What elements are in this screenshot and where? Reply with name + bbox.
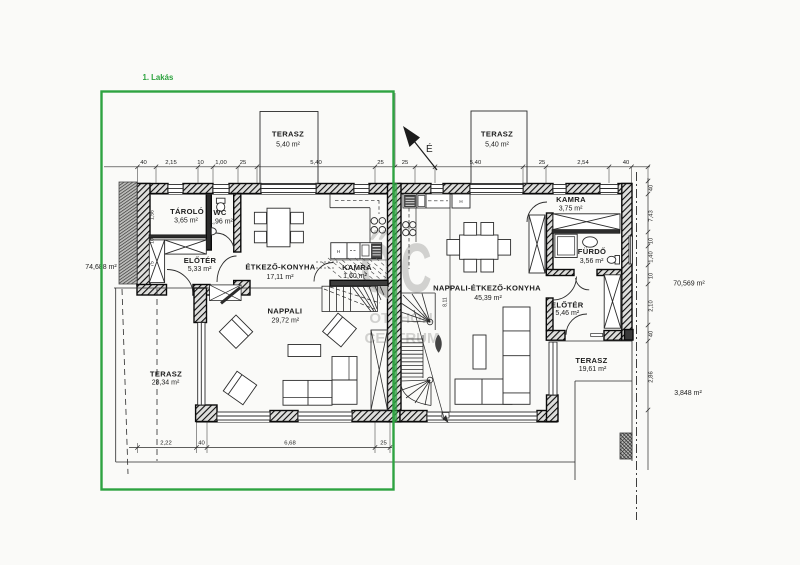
svg-text:2,54: 2,54 (577, 160, 589, 166)
svg-text:6,68: 6,68 (284, 441, 296, 447)
svg-text:40: 40 (198, 441, 205, 447)
svg-text:17,11 m²: 17,11 m² (266, 274, 294, 281)
svg-text:É: É (426, 142, 433, 155)
svg-text:25: 25 (402, 160, 409, 166)
svg-text:ELŐTÉR: ELŐTÉR (184, 256, 217, 265)
svg-text:ELŐTÉR: ELŐTÉR (551, 300, 584, 309)
svg-text:10: 10 (150, 238, 156, 244)
svg-text:1,96 m²: 1,96 m² (209, 219, 233, 226)
svg-text:TÁROLÓ: TÁROLÓ (170, 207, 204, 216)
svg-text:2,22: 2,22 (160, 441, 171, 447)
svg-text:2,86: 2,86 (649, 371, 655, 383)
svg-text:TERASZ: TERASZ (272, 130, 304, 139)
svg-text:5,40 m²: 5,40 m² (276, 142, 300, 149)
svg-text:25: 25 (380, 441, 387, 447)
svg-text:5,40: 5,40 (310, 160, 322, 166)
svg-text:1,40: 1,40 (649, 251, 655, 263)
svg-text:7,43: 7,43 (649, 210, 655, 222)
svg-text:3,848 m²: 3,848 m² (674, 390, 702, 397)
svg-text:25: 25 (377, 160, 384, 166)
svg-text:40: 40 (649, 330, 655, 337)
svg-text:KAMRA: KAMRA (556, 195, 586, 204)
svg-text:5,33 m²: 5,33 m² (188, 266, 212, 273)
svg-text:WC: WC (213, 208, 226, 217)
svg-text:NAPPALI: NAPPALI (267, 306, 302, 315)
svg-text:8,11: 8,11 (443, 297, 449, 307)
svg-text:19,61 m²: 19,61 m² (579, 366, 607, 373)
svg-text:45,39 m²: 45,39 m² (474, 295, 502, 302)
svg-text:TERASZ: TERASZ (150, 370, 182, 379)
svg-text:ÉTKEZŐ-KONYHA: ÉTKEZŐ-KONYHA (245, 262, 315, 271)
svg-text:75: 75 (150, 261, 156, 267)
svg-text:3,75 m²: 3,75 m² (559, 205, 583, 212)
svg-text:3,65 m²: 3,65 m² (174, 218, 198, 225)
svg-text:1,60 m²: 1,60 m² (343, 273, 367, 280)
svg-text:2,15: 2,15 (165, 160, 177, 166)
svg-text:H: H (337, 249, 340, 254)
svg-text:5,40 m²: 5,40 m² (485, 142, 509, 149)
svg-text:TERASZ: TERASZ (481, 130, 513, 139)
svg-text:3,56 m²: 3,56 m² (580, 258, 604, 265)
svg-text:TERASZ: TERASZ (575, 356, 607, 365)
svg-text:29,72 m²: 29,72 m² (271, 318, 299, 325)
svg-text:KAMRA: KAMRA (342, 263, 372, 272)
svg-text:2,10: 2,10 (649, 300, 655, 312)
svg-text:5,40: 5,40 (470, 160, 482, 166)
svg-text:10: 10 (197, 160, 204, 166)
svg-text:40: 40 (140, 160, 147, 166)
svg-text:1,00: 1,00 (215, 160, 227, 166)
svg-text:25: 25 (240, 160, 247, 166)
svg-text:25: 25 (539, 160, 546, 166)
svg-text:28,34 m²: 28,34 m² (152, 380, 180, 387)
svg-text:5,46 m²: 5,46 m² (555, 310, 579, 317)
svg-text:CENTRUM: CENTRUM (365, 330, 440, 347)
svg-text:FÜRDŐ: FÜRDŐ (578, 247, 607, 256)
svg-text:40: 40 (649, 184, 655, 191)
svg-text:10: 10 (649, 237, 655, 244)
svg-text:NAPPALI-ÉTKEZŐ-KONYHA: NAPPALI-ÉTKEZŐ-KONYHA (433, 283, 541, 292)
svg-text:1,56: 1,56 (150, 210, 156, 220)
svg-text:H: H (459, 199, 462, 204)
svg-text:1. Lakás: 1. Lakás (143, 73, 174, 82)
svg-text:10: 10 (649, 272, 655, 279)
svg-text:40: 40 (623, 160, 630, 166)
svg-text:70,569 m²: 70,569 m² (673, 281, 705, 288)
